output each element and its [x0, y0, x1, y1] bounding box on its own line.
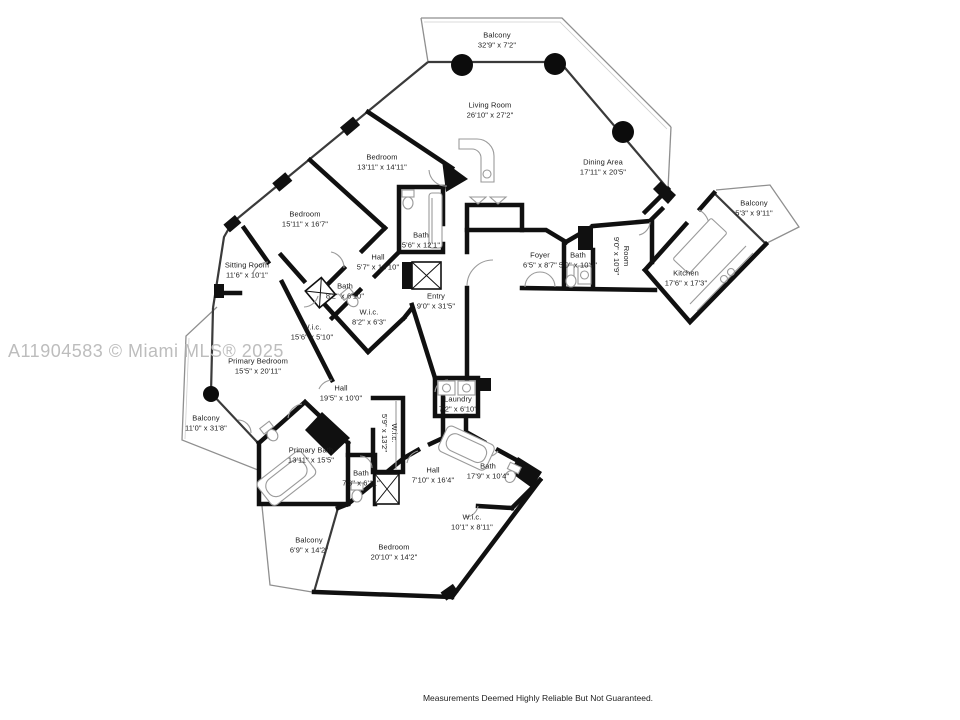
room-label-living-room: Living Room26'10" x 27'2"	[467, 100, 514, 120]
room-label-room: Room9'0" x 10'9"	[611, 237, 631, 275]
column-icon	[203, 386, 219, 402]
room-label-kitchen: Kitchen17'6" x 17'3"	[665, 268, 707, 288]
room-label-wic-2: W.i.c.15'6" x 5'10"	[291, 322, 333, 342]
room-label-sitting-room: Sitting Room11'6" x 10'1"	[225, 260, 269, 280]
room-label-wic-4: W.i.c.10'1" x 8'11"	[451, 512, 493, 532]
room-label-balcony-east: Balcony5'3" x 9'11"	[735, 198, 773, 218]
room-label-bedroom-2: Bedroom13'11" x 14'11"	[357, 152, 407, 172]
room-label-bedroom-3: Bedroom15'11" x 16'7"	[282, 209, 328, 229]
room-label-laundry: Laundry7'2" x 6'10"	[439, 394, 477, 414]
wet-bar-icon	[459, 139, 494, 182]
room-label-hall-3: Hall7'10" x 16'4"	[412, 465, 454, 485]
room-label-bath-2: Bath5'6" x 12'1"	[402, 230, 440, 250]
room-label-balcony-south: Balcony6'9" x 14'2"	[290, 535, 328, 555]
unit-walls	[222, 112, 766, 597]
room-label-balcony-west: Balcony11'0" x 31'8"	[185, 413, 227, 433]
washer-icon	[438, 381, 455, 395]
room-label-wic-1: W.i.c.8'2" x 6'3"	[352, 307, 386, 327]
column-icon	[612, 121, 634, 143]
column-icon	[544, 53, 566, 75]
mls-watermark: A11904583 © Miami MLS® 2025	[8, 341, 284, 362]
dryer-icon	[458, 381, 475, 395]
room-label-entry: Entry9'0" x 31'5"	[417, 291, 455, 311]
room-label-primary-bath: Primary Bath13'11" x 15'5"	[288, 445, 334, 465]
column-icon	[451, 54, 473, 76]
floor-plan-page: Balcony32'9" x 7'2" Living Room26'10" x …	[0, 0, 960, 720]
room-label-bath-6: Bath17'9" x 10'4"	[467, 461, 509, 481]
room-label-dining-area: Dining Area17'11" x 20'5"	[580, 157, 626, 177]
toilet-icon	[402, 190, 414, 209]
room-label-hall-1: Hall5'7" x 13'10"	[357, 252, 399, 272]
room-label-balcony-top: Balcony32'9" x 7'2"	[478, 30, 516, 50]
room-label-hall-2: Hall19'5" x 10'0"	[320, 383, 362, 403]
elevator-shaft-icon	[412, 262, 441, 289]
room-label-bath-5: Bath7'3" x 6'11"	[342, 468, 380, 488]
room-label-bath-3: Bath8'2" x 6'10"	[326, 281, 364, 301]
room-label-wic-3: W.i.c.5'9" x 13'2"	[379, 414, 399, 452]
measurement-disclaimer: Measurements Deemed Highly Reliable But …	[58, 693, 960, 703]
room-label-bath-4: Bath5'0" x 10'9"	[559, 250, 597, 270]
room-label-bedroom-4: Bedroom20'10" x 14'2"	[371, 542, 418, 562]
room-label-foyer: Foyer6'5" x 8'7"	[523, 250, 557, 270]
